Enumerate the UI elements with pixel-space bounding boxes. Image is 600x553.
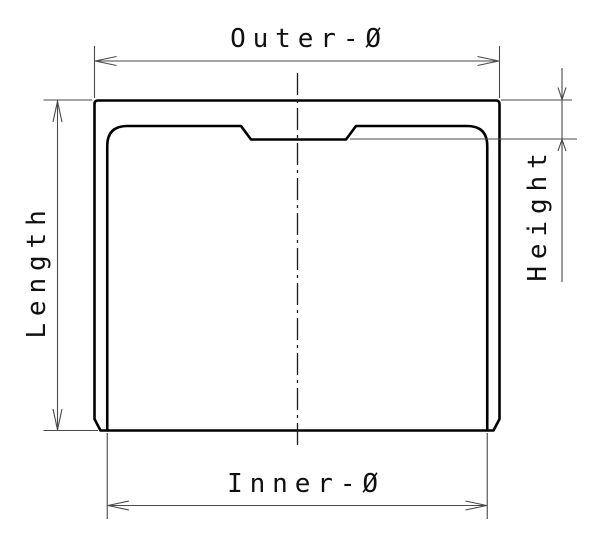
height-extension-lines: [350, 100, 577, 139]
inner-diameter-label: Inner-Ø: [227, 469, 385, 499]
drawing-canvas: Outer-Ø Inner-Ø Length Height: [0, 0, 600, 553]
length-label: Length: [22, 203, 52, 338]
tappet-technical-drawing: Outer-Ø Inner-Ø Length Height: [0, 0, 600, 553]
height-label: Height: [523, 146, 553, 281]
outer-diameter-label: Outer-Ø: [230, 24, 388, 54]
